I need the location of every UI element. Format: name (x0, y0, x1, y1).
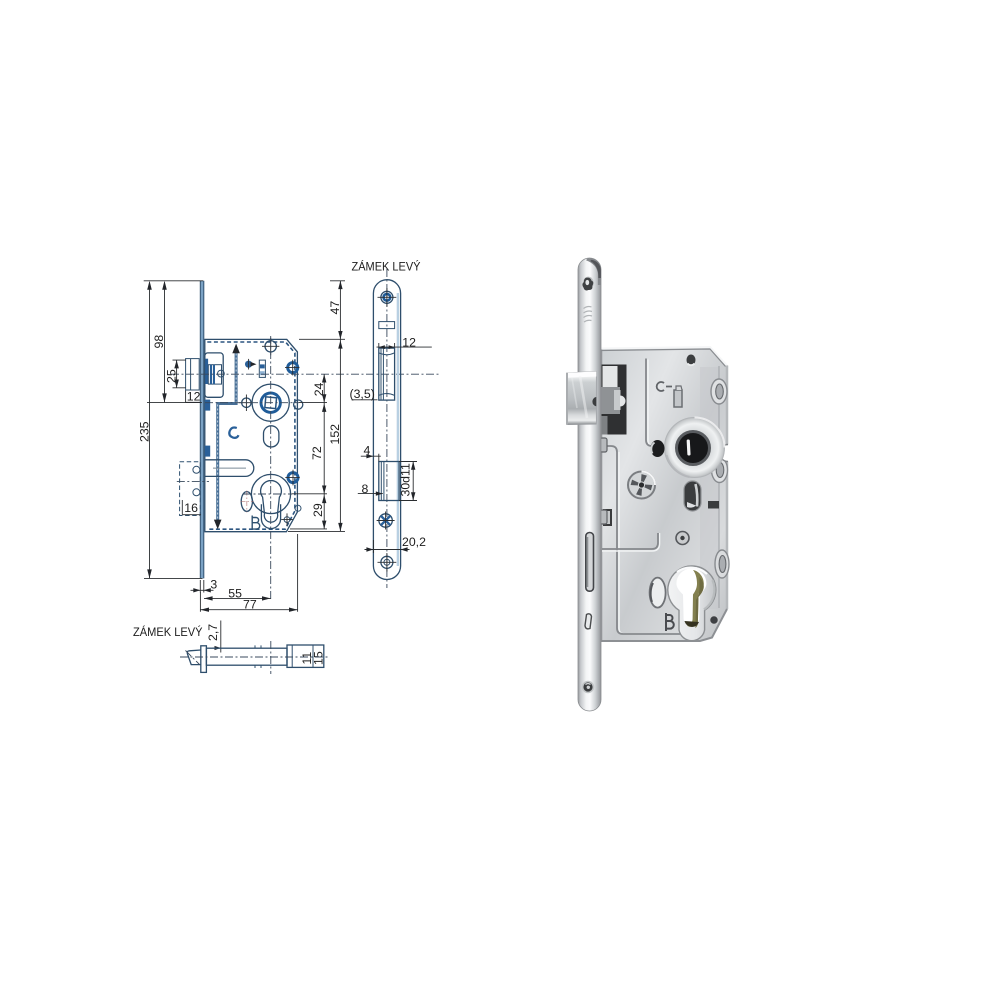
svg-text:ZÁMEK LEVÝ: ZÁMEK LEVÝ (133, 624, 203, 639)
svg-text:55: 55 (228, 586, 242, 600)
svg-text:12: 12 (187, 389, 201, 403)
svg-text:98: 98 (152, 335, 166, 349)
svg-text:25: 25 (165, 369, 179, 383)
svg-text:12: 12 (402, 336, 416, 350)
svg-text:30d11: 30d11 (398, 463, 412, 496)
svg-text:24: 24 (312, 382, 326, 396)
svg-text:20,2: 20,2 (402, 535, 426, 549)
svg-text:77: 77 (243, 598, 257, 612)
svg-text:47: 47 (328, 301, 342, 315)
svg-text:ZÁMEK LEVÝ: ZÁMEK LEVÝ (352, 258, 421, 273)
svg-text:16: 16 (184, 501, 198, 515)
svg-text:3: 3 (210, 578, 217, 592)
svg-text:235: 235 (138, 421, 152, 442)
svg-text:15: 15 (311, 651, 325, 665)
svg-text:152: 152 (328, 424, 342, 445)
svg-text:72: 72 (310, 446, 324, 460)
svg-text:2,7: 2,7 (206, 624, 220, 641)
svg-text:29: 29 (311, 503, 325, 517)
svg-text:(3,5): (3,5) (350, 387, 375, 401)
